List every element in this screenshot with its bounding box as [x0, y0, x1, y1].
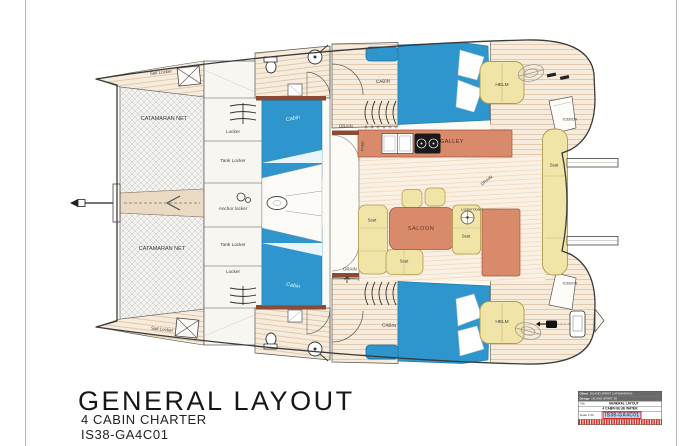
fore-cabins [262, 101, 322, 306]
label-seat-aft: Seat [550, 164, 558, 168]
drawing-subtitle-1: 4 CABIN CHARTER [81, 412, 207, 427]
aft-cabin-bottom [332, 278, 490, 364]
design-label: Design [579, 397, 591, 400]
title-block-revision-strip [579, 420, 662, 425]
galley-unit [358, 130, 512, 157]
aft-cabin-top [332, 43, 490, 129]
label-seat-bottom: Seat [400, 260, 408, 264]
sail-locker-hatch-bottom [175, 318, 199, 338]
layout-drawing-page: Sail Locker CATAMARAN NET CATAMARAN NET … [0, 0, 700, 446]
toilet-icon [266, 61, 276, 73]
catamaran-plan-svg [0, 0, 700, 446]
outboard-motor-icon [546, 321, 557, 329]
design-value: ISLAND SPIRIT 38 [591, 397, 618, 400]
label-tank-locker-bottom: Tank Locker [220, 243, 245, 248]
bench-left [359, 205, 388, 274]
hatch-top [366, 47, 398, 61]
label-cabin-aft-top: CABIN [376, 79, 391, 84]
label-catamaran-net-top: CATAMARAN NET [141, 116, 187, 122]
label-drain-top: DRAIN [339, 125, 352, 129]
scale-text: Scale 1:50 [579, 412, 602, 420]
client-value: ISLAND SPIRIT CATAMARANS [589, 392, 634, 395]
label-saloon: SALOON [408, 226, 435, 232]
label-icebox-bottom: ICEBOX [563, 282, 578, 286]
head-bottom [255, 305, 330, 361]
engine-hatch [570, 311, 585, 337]
forward-lockers-column [204, 61, 262, 345]
label-icebox-top: ICEBOX [563, 118, 578, 122]
title-value: GENERAL LAYOUT [586, 402, 661, 406]
head-top [255, 45, 330, 101]
label-locker-board: Locker board [461, 208, 483, 212]
stern-step [595, 309, 604, 332]
label-tank-locker-top: Tank Locker [220, 159, 245, 164]
label-fridge: Fridge [361, 141, 365, 151]
label-anchor-locker: Anchor locker [219, 207, 248, 212]
label-seat-right: Seat [462, 235, 470, 239]
title-label: Title [579, 402, 587, 405]
label-locker-bottom: Locker [226, 270, 240, 275]
drawing-subtitle-2: IS38-GA4C01 [81, 427, 169, 442]
label-helm-bottom: HELM [495, 320, 508, 325]
client-label: Client [579, 392, 589, 395]
stool [402, 190, 422, 208]
trampoline-nets [120, 87, 204, 319]
title-block-number-row: Scale 1:50 IS38-GA4C01 [579, 412, 662, 420]
title-value-2: 4 CABIN BLUE WATER [602, 407, 637, 411]
nav-cabinet [482, 209, 520, 276]
aft-bench-seat [543, 129, 568, 275]
label-galley: GALLEY [440, 139, 464, 144]
drawing-number-badge: IS38-GA4C01 [603, 412, 642, 420]
stove-icon [415, 134, 441, 154]
bowsprit-anchor [70, 184, 120, 222]
label-helm-top: HELM [495, 83, 508, 88]
label-catamaran-net-bottom: CATAMARAN NET [139, 246, 185, 252]
label-drain-bottom: DRAIN [343, 268, 356, 272]
title-block: Client ISLAND SPIRIT CATAMARANS Design I… [578, 391, 662, 425]
sail-locker-hatch-top [177, 66, 201, 86]
mast-step-icon [267, 197, 287, 210]
toilet-icon [266, 333, 276, 345]
stool [425, 188, 445, 206]
label-cabin-aft-bottom: CABIN [382, 323, 397, 328]
label-seat-left: Seat [368, 219, 376, 223]
label-locker-top: Locker [226, 130, 240, 135]
